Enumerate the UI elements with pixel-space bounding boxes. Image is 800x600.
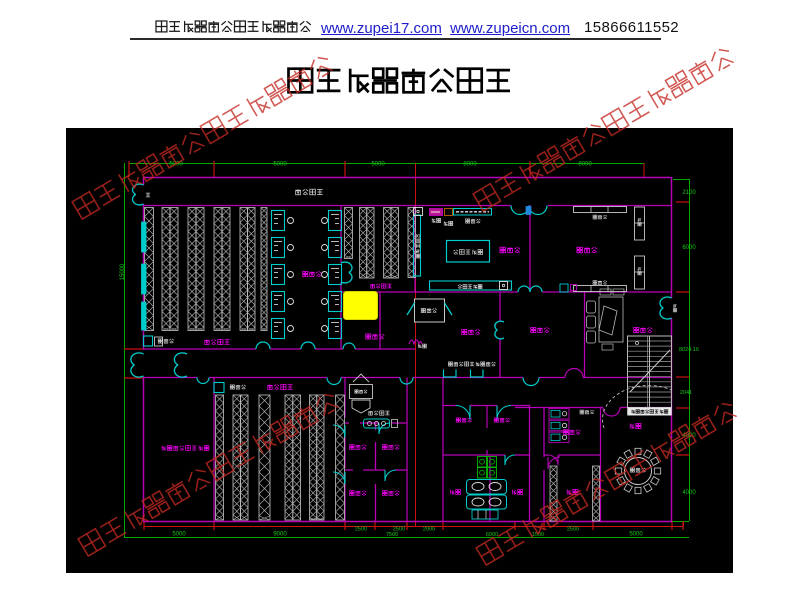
- svg-text:2100: 2100: [682, 190, 696, 196]
- svg-text:5000: 5000: [629, 532, 643, 538]
- svg-text:8000: 8000: [463, 162, 477, 168]
- svg-text:9000: 9000: [273, 532, 287, 538]
- svg-text:5000: 5000: [371, 162, 385, 168]
- svg-text:2041: 2041: [680, 390, 692, 396]
- svg-text:2000: 2000: [423, 527, 435, 533]
- svg-text:5000: 5000: [273, 162, 287, 168]
- svg-text:4000: 4000: [682, 490, 696, 496]
- svg-text:2500: 2500: [567, 527, 579, 533]
- svg-text:5000: 5000: [172, 532, 186, 538]
- svg-text:15000: 15000: [120, 263, 126, 280]
- svg-text:7500: 7500: [386, 532, 398, 538]
- svg-text:2500: 2500: [355, 527, 367, 533]
- svg-text:6000: 6000: [682, 245, 696, 251]
- svg-text:8024.16: 8024.16: [679, 347, 699, 353]
